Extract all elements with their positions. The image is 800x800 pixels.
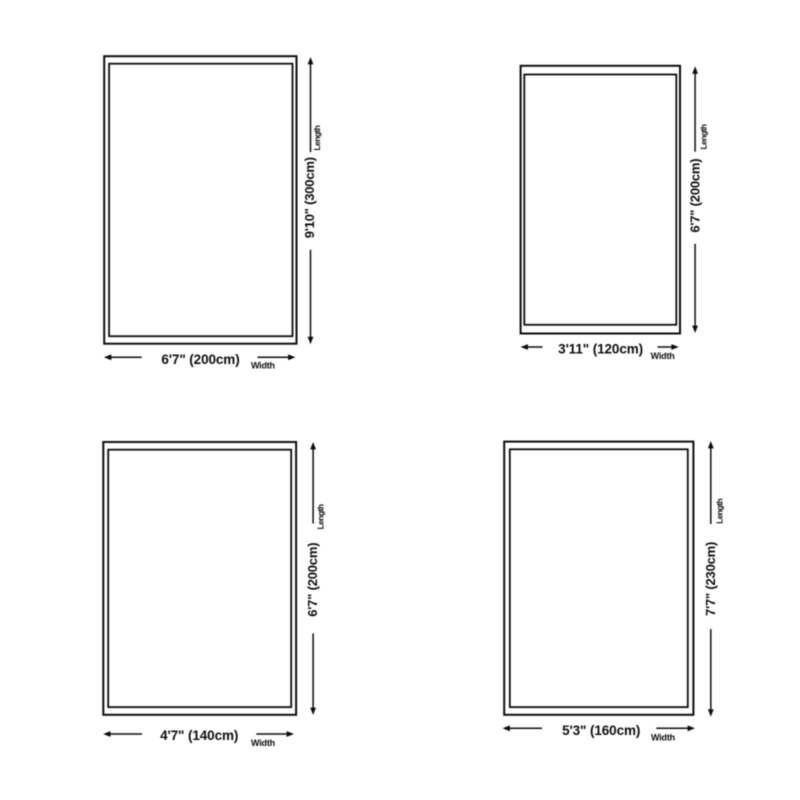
svg-text:4'7" (140cm): 4'7" (140cm) bbox=[160, 728, 238, 743]
svg-text:3'11" (120cm): 3'11" (120cm) bbox=[558, 341, 643, 356]
svg-text:Length: Length bbox=[312, 125, 322, 150]
svg-text:Width: Width bbox=[651, 733, 675, 743]
svg-text:6'7" (200cm): 6'7" (200cm) bbox=[161, 352, 239, 367]
svg-text:9'10" (300cm): 9'10" (300cm) bbox=[302, 157, 317, 238]
svg-text:Length: Length bbox=[316, 504, 326, 529]
svg-text:Width: Width bbox=[251, 361, 275, 371]
svg-text:Width: Width bbox=[651, 351, 675, 361]
svg-text:Length: Length bbox=[698, 124, 708, 149]
svg-text:6'7" (200cm): 6'7" (200cm) bbox=[305, 543, 320, 617]
svg-text:7'7" (230cm): 7'7" (230cm) bbox=[703, 542, 718, 616]
svg-text:Length: Length bbox=[715, 499, 725, 524]
svg-text:6'7" (200cm): 6'7" (200cm) bbox=[688, 159, 703, 233]
svg-text:Width: Width bbox=[251, 738, 275, 748]
svg-text:5'3" (160cm): 5'3" (160cm) bbox=[562, 723, 640, 738]
